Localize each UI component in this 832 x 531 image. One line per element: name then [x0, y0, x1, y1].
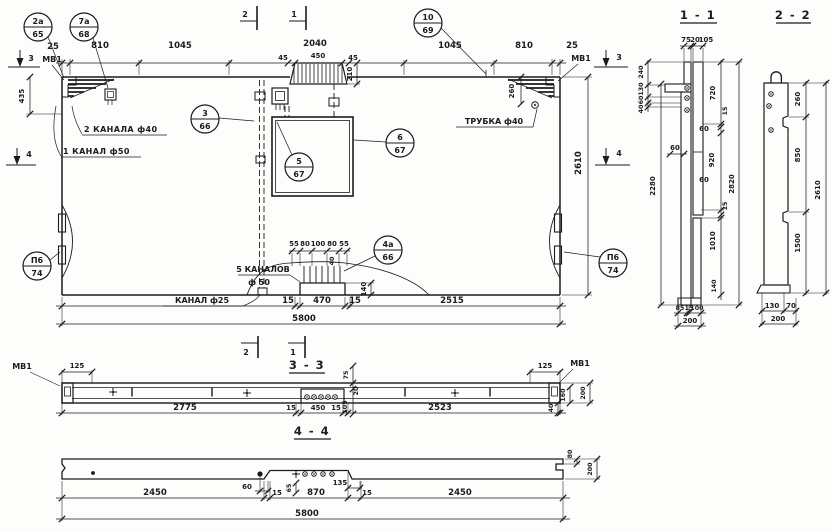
- s11-dim-60-flange: 60: [670, 144, 680, 152]
- callout-2a: 2а 65: [24, 13, 52, 41]
- callout-p6-left: П6 74: [23, 252, 51, 280]
- s33-dim-125-right: 125: [538, 362, 553, 370]
- s44-dim-870: 870: [307, 488, 325, 498]
- dim-2610: 2610: [574, 151, 584, 175]
- marker-1-top: 1: [291, 10, 297, 19]
- s22-dim-850: 850: [794, 148, 802, 163]
- dim-15-left: 15: [282, 296, 294, 306]
- dim-top-45-left: 45: [278, 54, 288, 62]
- callout-2a-sheet: 65: [32, 30, 44, 39]
- callout-p6-right: П6 74: [599, 249, 627, 277]
- s44-dim-5800: 5800: [295, 509, 319, 519]
- section-3-3-shape: [62, 383, 560, 403]
- section-4-4: 4 - 4 60 65 135 2450 15 870 15 2450 5800…: [56, 424, 600, 522]
- callout-5: 5 67: [285, 153, 313, 181]
- s11-dim-1010: 1010: [709, 231, 717, 251]
- callout-7a: 7а 68: [70, 13, 98, 41]
- plan-corner-steps: [62, 77, 560, 97]
- s11-dim-85: 85: [676, 305, 685, 312]
- s11-dim-2280: 2280: [649, 176, 657, 196]
- s22-dim-2610: 2610: [814, 180, 822, 200]
- s11-dim-720: 720: [709, 86, 717, 101]
- s11-dim-60a: 60: [638, 95, 645, 104]
- dim-40: 40: [329, 256, 336, 265]
- callout-6: 6 67: [386, 129, 414, 157]
- callout-3-sheet: 66: [199, 122, 211, 131]
- callout-p6-left-num: П6: [31, 256, 44, 265]
- s44-dim-135: 135: [333, 479, 348, 487]
- dim-2515: 2515: [440, 296, 464, 306]
- s44-dim-60: 60: [242, 483, 252, 491]
- callout-4a: 4а 66: [374, 236, 402, 264]
- callout-p6-left-sheet: 74: [31, 269, 43, 278]
- callout-10-num: 10: [422, 13, 434, 22]
- callout-10: 10 69: [414, 9, 442, 37]
- plan-callout-leaders: [48, 28, 600, 271]
- marker-2-top: 2: [242, 10, 248, 19]
- s22-dim-200: 200: [771, 315, 786, 323]
- s44-dim-2450-left: 2450: [143, 488, 167, 498]
- section-4-4-shape: [62, 459, 563, 479]
- section-1-1-title: 1 - 1: [680, 8, 716, 22]
- callout-4a-num: 4а: [383, 240, 394, 249]
- marker-4-left: 4: [26, 150, 32, 159]
- marker-3-right: 3: [616, 53, 622, 62]
- s33-dim-20: 20: [353, 386, 360, 395]
- s44-dim-15-right: 15: [362, 489, 372, 497]
- dim-435: 435: [18, 89, 26, 104]
- dim-210: 210: [346, 67, 354, 82]
- dim-top-2040: 2040: [303, 39, 327, 49]
- callout-3: 3 66: [191, 105, 219, 133]
- top-recess-hatch: [294, 64, 342, 83]
- anchor-mv1-left: МВ1: [42, 55, 62, 64]
- channel-dashed-lines: [260, 80, 335, 288]
- label-2-channels-40: 2 КАНАЛА ф40: [84, 125, 157, 134]
- dim-top-810-right: 810: [515, 41, 533, 51]
- callout-10-sheet: 69: [422, 26, 434, 35]
- dim-55-left: 55: [289, 240, 299, 248]
- s11-dim-40: 40: [638, 104, 645, 113]
- s22-dim-70: 70: [786, 302, 796, 310]
- callout-4a-sheet: 66: [382, 253, 394, 262]
- s44-dim-80: 80: [567, 449, 574, 458]
- panel-working-drawing: 25 810 1045 2040 45 450 45 1045 810 25 2…: [0, 0, 832, 531]
- s33-dim-15-left: 15: [286, 404, 296, 412]
- s33-dim-160: 160: [560, 388, 567, 402]
- tube-point: [532, 102, 539, 109]
- s33-dim-450: 450: [311, 404, 326, 412]
- s33-mv1-left: МВ1: [12, 362, 32, 371]
- callout-p6-right-sheet: 74: [607, 266, 619, 275]
- blueprint-sheet: 25 810 1045 2040 45 450 45 1045 810 25 2…: [0, 0, 832, 531]
- label-5-channels-line2: ф 50: [248, 278, 270, 287]
- dim-15-right: 15: [349, 296, 361, 306]
- marker-2-bottom: 2: [243, 348, 249, 357]
- plan-view: 25 810 1045 2040 45 450 45 1045 810 25 2…: [6, 6, 630, 358]
- s44-dim-15-left: 15: [272, 489, 282, 497]
- callout-6-sheet: 67: [394, 146, 405, 155]
- dim-top-1045-left: 1045: [168, 41, 192, 51]
- dim-80-right: 80: [327, 240, 337, 248]
- s11-dim-200: 200: [683, 317, 698, 325]
- s11-dim-2820: 2820: [728, 174, 736, 194]
- callout-5-num: 5: [296, 157, 302, 166]
- s44-dim-65: 65: [286, 484, 293, 493]
- s33-mv1-right: МВ1: [570, 359, 590, 368]
- label-1-channel-50: 1 КАНАЛ ф50: [63, 147, 130, 156]
- section-2-2: 2 - 2 260 850 1500 2610 130 70 200: [757, 8, 829, 327]
- s11-dim-105: 105: [699, 36, 714, 44]
- dim-top-25-right: 25: [566, 41, 578, 51]
- callout-7a-sheet: 68: [78, 30, 90, 39]
- callout-2a-num: 2а: [33, 17, 44, 26]
- s11-dim-60b: 60: [699, 125, 709, 133]
- opening-outline: [272, 117, 353, 196]
- dim-470: 470: [313, 296, 331, 306]
- callout-p6-right-num: П6: [607, 253, 620, 262]
- s11-dim-100: 100: [690, 305, 704, 312]
- s33-dim-200: 200: [580, 386, 587, 400]
- s33-dim-105: 105: [342, 400, 349, 413]
- section-1-1-shape: [665, 62, 703, 305]
- marker-1-bottom: 1: [290, 348, 296, 357]
- section-1-1: 1 - 1 75 20 105 240 130 60 40 60 720 15 …: [638, 8, 742, 329]
- section-2-2-shape: [757, 72, 790, 293]
- s11-dim-920: 920: [708, 153, 716, 168]
- s44-dim-2450-right: 2450: [448, 488, 472, 498]
- top-recess: [290, 63, 347, 84]
- s33-dim-15-right: 15: [331, 404, 341, 412]
- marker-3-left: 3: [28, 54, 34, 63]
- s44-dim-200: 200: [587, 462, 594, 476]
- dim-100: 100: [311, 240, 326, 248]
- s11-dim-140: 140: [711, 279, 718, 293]
- plan-label-lines: [52, 64, 578, 306]
- dim-140: 140: [360, 282, 368, 297]
- opening-inner: [276, 121, 350, 193]
- s22-dim-1500: 1500: [794, 233, 802, 253]
- callout-7a-num: 7а: [79, 17, 90, 26]
- dim-55-right: 55: [339, 240, 349, 248]
- section-3-3: 3 - 3 МВ1 125 2775 15 450 15 75 20 105 2…: [12, 358, 593, 417]
- callout-3-num: 3: [202, 109, 208, 118]
- callout-5-sheet: 67: [293, 170, 304, 179]
- dim-top-810-left: 810: [91, 41, 109, 51]
- marker-4-right: 4: [616, 149, 622, 158]
- anchor-mv1-right: МВ1: [571, 54, 591, 63]
- label-5-channels-line1: 5 КАНАЛОВ: [236, 265, 290, 274]
- section-4-4-dim-lines: [56, 456, 600, 522]
- embedded-fixtures: [105, 70, 486, 295]
- dim-260-tube: 260: [508, 84, 516, 99]
- dim-5800-plan: 5800: [292, 314, 316, 324]
- section-2-2-title: 2 - 2: [775, 8, 811, 22]
- s33-dim-75: 75: [343, 371, 350, 380]
- plan-outline: [62, 77, 560, 295]
- s22-dim-260: 260: [794, 92, 802, 107]
- s33-dim-125-left: 125: [70, 362, 85, 370]
- label-channel-25: КАНАЛ ф25: [175, 296, 230, 305]
- dim-top-45-right: 45: [348, 54, 358, 62]
- s11-dim-15b: 15: [722, 202, 729, 211]
- s22-dim-130: 130: [765, 302, 780, 310]
- dim-80-left: 80: [300, 240, 310, 248]
- section-4-4-title: 4 - 4: [294, 424, 330, 438]
- section-2-2-dim-lines: [759, 80, 829, 327]
- dim-top-450: 450: [311, 52, 326, 60]
- callout-6-num: 6: [397, 133, 403, 142]
- s11-dim-240: 240: [638, 65, 645, 79]
- s33-dim-2775: 2775: [173, 403, 197, 413]
- s33-dim-2523: 2523: [428, 403, 452, 413]
- label-tube-40: ТРУБКА ф40: [465, 117, 524, 126]
- s11-dim-130: 130: [638, 82, 645, 96]
- s33-dim-40: 40: [548, 403, 555, 412]
- s11-dim-60c: 60: [699, 176, 709, 184]
- s11-dim-15a: 15: [722, 107, 729, 116]
- section-3-3-title: 3 - 3: [289, 358, 325, 372]
